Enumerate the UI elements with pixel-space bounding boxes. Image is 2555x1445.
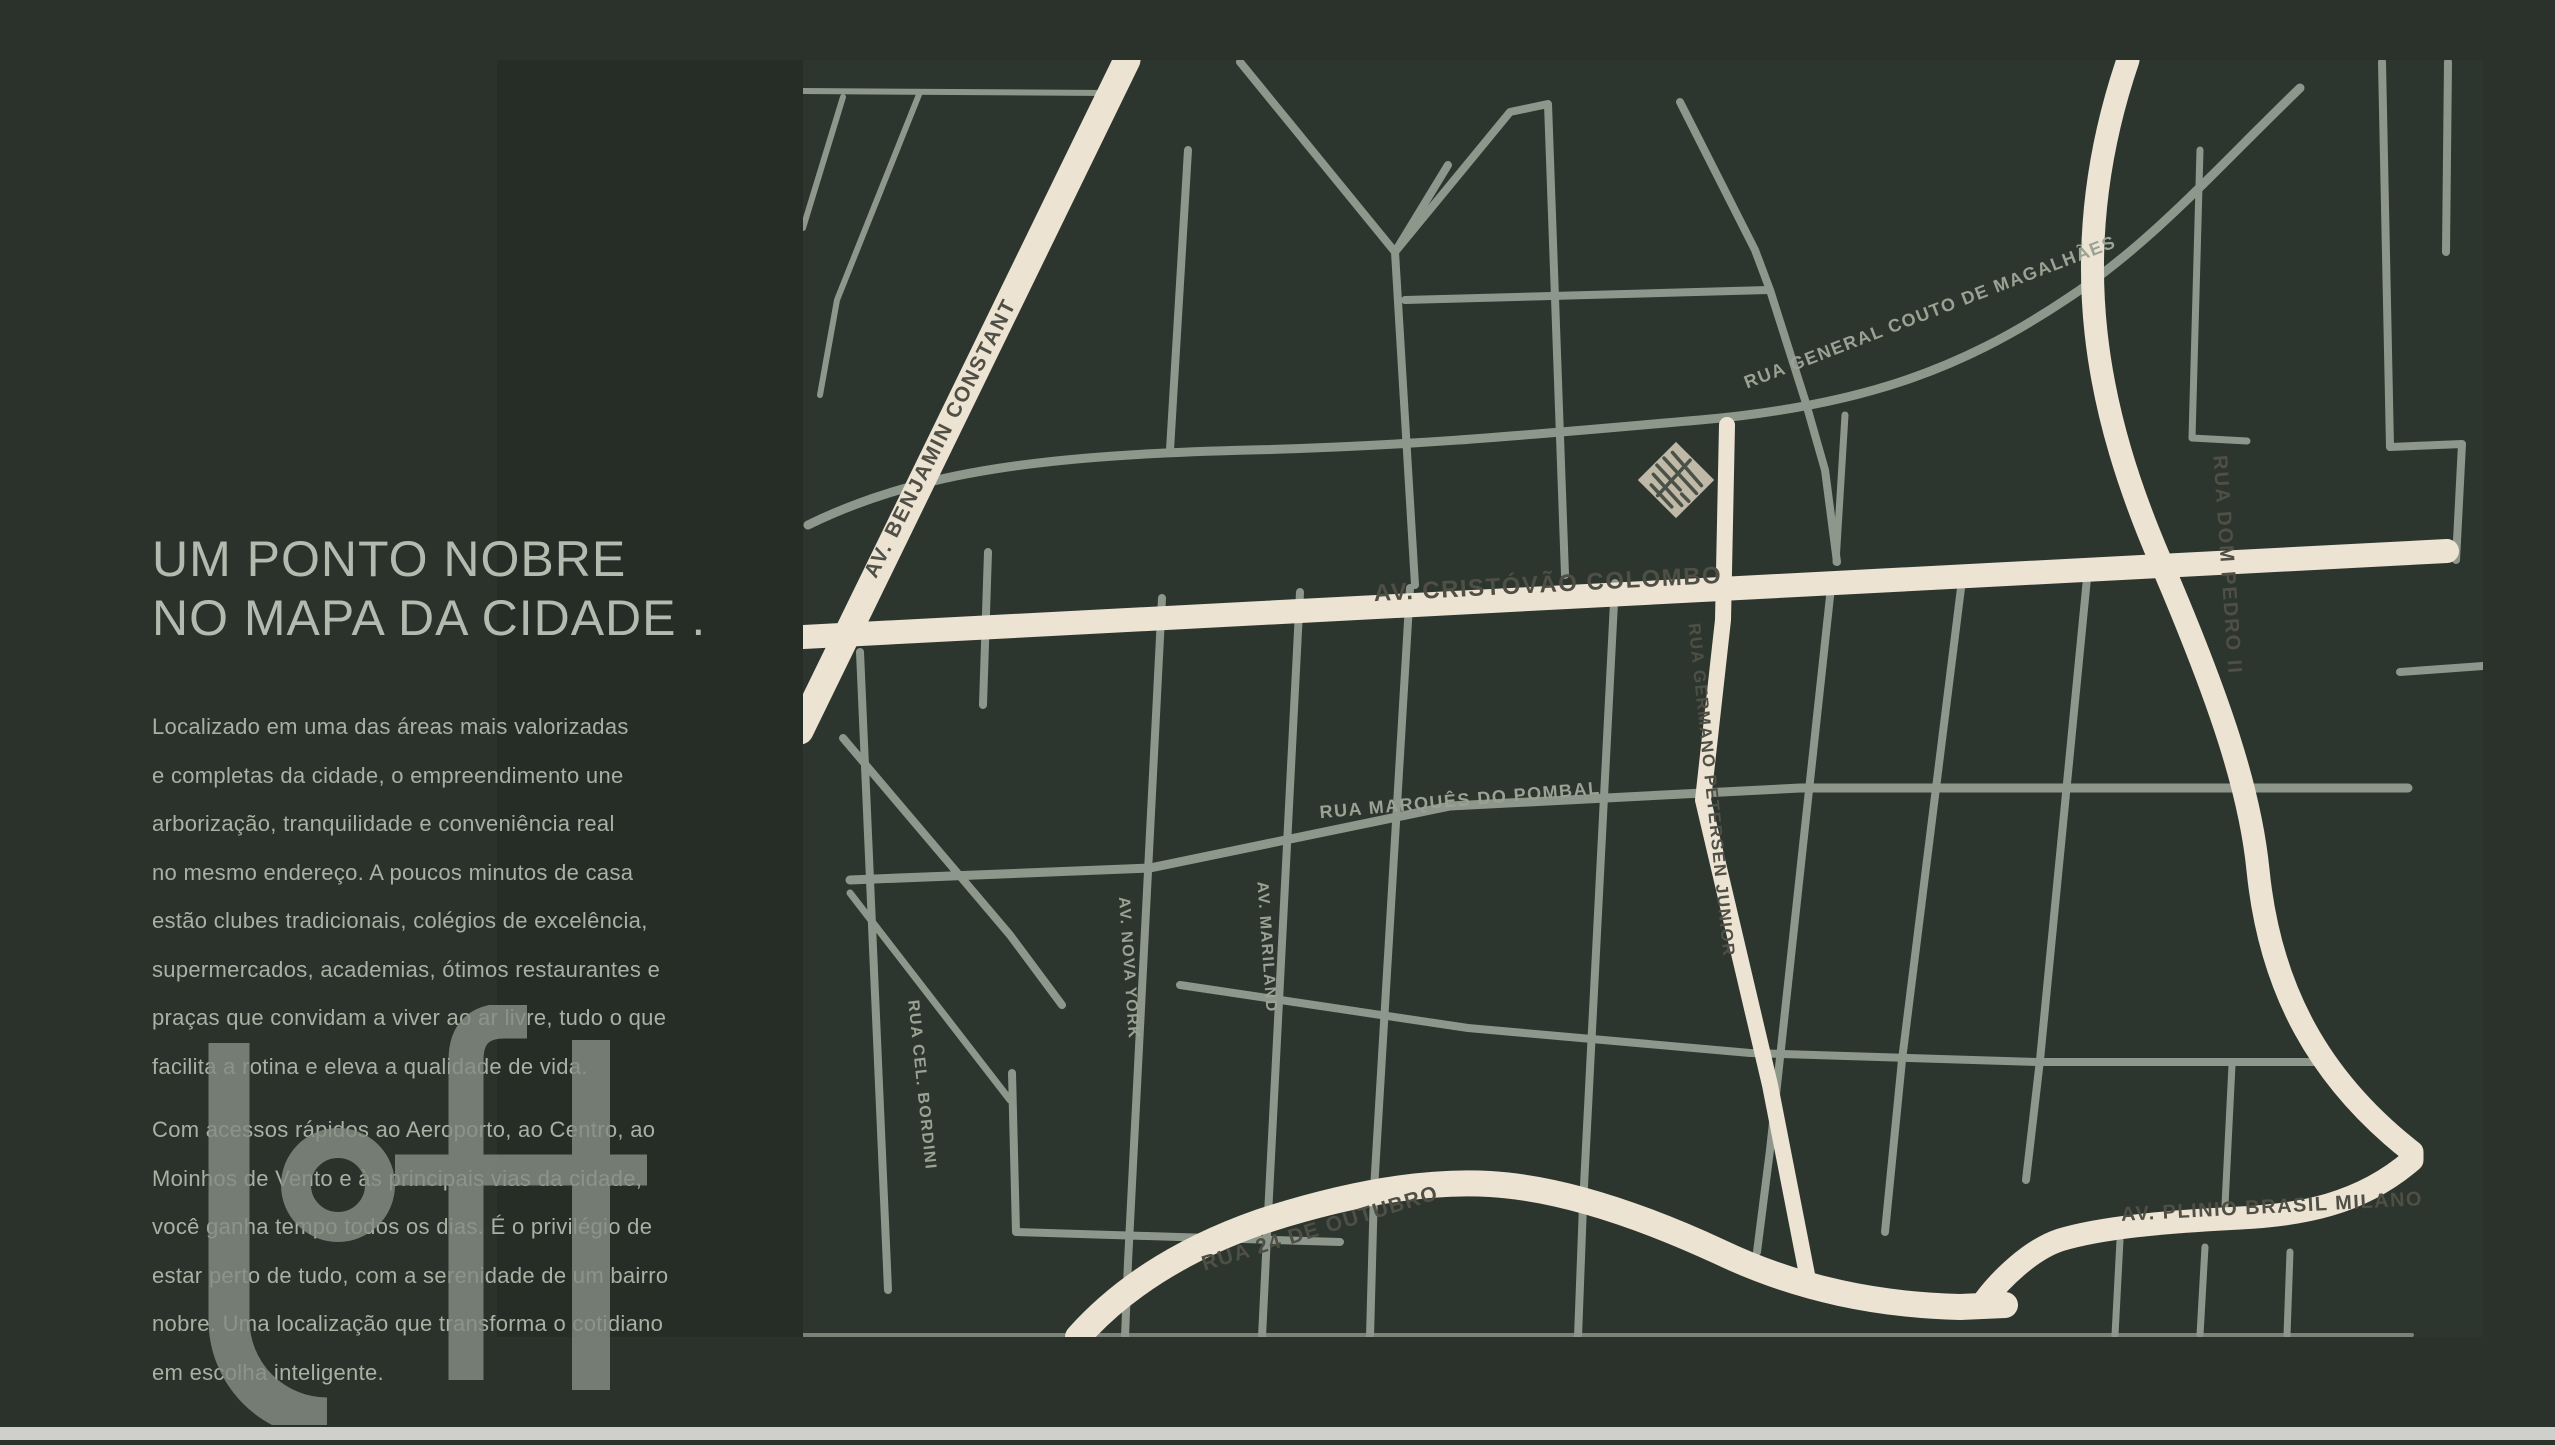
loft-letter-f <box>466 1021 527 1380</box>
loft-logo-watermark <box>195 1005 655 1425</box>
bottom-edge-strip <box>0 1427 2555 1440</box>
loft-letter-o <box>296 1143 380 1227</box>
page-title: UM PONTO NOBRE NO MAPA DA CIDADE . <box>152 530 706 648</box>
